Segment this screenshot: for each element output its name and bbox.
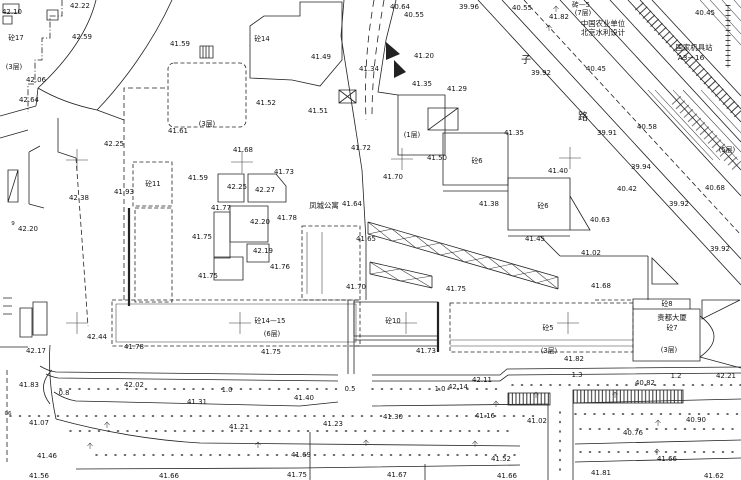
braced-box-marker — [339, 90, 356, 103]
spot-elevation-label: 41.76 — [270, 263, 291, 271]
spot-elevation-label: 41.75 — [446, 285, 466, 293]
survey-cross-mark — [229, 312, 251, 334]
spot-elevation-label: 42.27 — [255, 186, 275, 194]
spot-elevation-label: 41.02 — [581, 249, 601, 257]
building-story-label: 砼5 — [542, 323, 553, 332]
steps-hatched-bar — [573, 390, 683, 403]
building-outline — [8, 170, 18, 202]
spot-elevation-label: 41.30 — [383, 413, 403, 421]
building-story-label: 砼10 — [385, 316, 400, 325]
building-story-label: 砼11 — [145, 179, 160, 188]
building-story-label: 砼6 — [537, 201, 548, 210]
spot-elevation-label: 41.16 — [475, 412, 496, 420]
building-outline — [652, 258, 678, 284]
tree-symbol — [255, 442, 260, 448]
survey-cross-mark — [66, 149, 88, 171]
spot-elevation-label: 42.11 — [472, 376, 492, 384]
spot-elevation-label: 41.75 — [198, 272, 218, 280]
spot-elevation-label: 41.61 — [168, 127, 188, 135]
spot-elevation-label: 39.96 — [459, 3, 480, 11]
spot-elevation-label: 41.31 — [187, 398, 207, 406]
spot-elevation-label: 41.77 — [211, 204, 231, 212]
spot-elevation-label: 39.92 — [710, 245, 730, 253]
spot-elevation-label: 41.67 — [387, 471, 407, 479]
building-inner-line — [307, 232, 322, 294]
slab-buildings-row — [112, 300, 633, 374]
spot-elevation-label: 39.91 — [597, 129, 617, 137]
width-dimension-label: 1.3 — [572, 371, 583, 379]
fence-dashed — [76, 158, 88, 326]
tree-symbol — [553, 6, 558, 12]
spot-elevation-label: 41.65 — [356, 235, 376, 243]
building-outline — [250, 2, 342, 86]
building-story-label: (3层) — [6, 63, 23, 71]
spot-elevation-label: 41.70 — [383, 173, 403, 181]
survey-cross-mark — [391, 148, 413, 170]
spot-elevation-label: 41.73 — [416, 347, 436, 355]
spot-elevation-label: 40.90 — [686, 416, 706, 424]
tick-marks — [3, 298, 12, 314]
lane-line — [310, 432, 425, 480]
spot-elevation-label: 40.42 — [617, 185, 637, 193]
tree-symbol — [655, 420, 660, 426]
spot-elevation-label: 41.52 — [491, 455, 511, 463]
building-outline — [47, 10, 58, 20]
sidewalk-dot-row — [10, 414, 741, 416]
survey-cross-mark — [557, 312, 579, 334]
survey-map: 42.10砼1742.2242.5942.0642.64(3层)41.59(3层… — [0, 0, 741, 480]
spot-elevation-label: 41.75 — [261, 348, 281, 356]
tree-symbol — [104, 422, 109, 428]
spot-elevation-label: 41.82 — [549, 13, 569, 21]
spot-elevation-label: 42.20 — [18, 225, 38, 233]
spot-elevation-label: 42.25 — [227, 183, 247, 191]
building-story-label: 砼8 — [661, 299, 672, 308]
spot-elevation-label: 42.25 — [104, 140, 124, 148]
boundary-line — [700, 357, 741, 368]
spot-elevation-label: 41.56 — [29, 472, 50, 480]
spot-elevation-label: 41.68 — [233, 146, 253, 154]
steps-hatched-bar — [508, 393, 550, 405]
spot-elevation-label: 41.75 — [192, 233, 212, 241]
spot-elevation-label: 41.38 — [479, 200, 499, 208]
boundary-line — [49, 345, 56, 419]
spot-elevation-label: 41.82 — [564, 355, 584, 363]
fengcheng-compound — [124, 88, 360, 306]
fence-band-outline — [370, 262, 432, 288]
building-outline — [508, 178, 590, 236]
building-story-label: (1层) — [404, 131, 421, 139]
spot-elevation-label: 42.21 — [716, 372, 736, 380]
crosses-layer — [66, 147, 581, 334]
place-name-label: 国家机具站 — [676, 43, 714, 52]
road-edge — [58, 118, 76, 158]
building-story-label: 砖—5 — [572, 0, 590, 9]
spot-elevation-label: 41.83 — [19, 381, 39, 389]
spot-elevation-label: 39.94 — [631, 163, 652, 171]
building-story-label: (6层) — [264, 330, 281, 338]
small-annotation-label: 06 — [4, 411, 12, 417]
tree-symbol — [363, 440, 368, 446]
stairs-symbol — [200, 46, 213, 58]
spot-elevation-label: 41.46 — [37, 452, 58, 460]
place-name-label: 北京水利设计 — [581, 28, 626, 37]
spot-elevation-label: 42.02 — [124, 381, 144, 389]
spot-elevation-label: 41.40 — [294, 394, 314, 402]
spot-elevation-label: 41.68 — [591, 282, 611, 290]
building-curved-wall — [700, 316, 714, 357]
road-curb — [76, 458, 741, 469]
tree-symbol — [472, 441, 477, 447]
tree-symbol — [493, 401, 498, 407]
building-story-label: (5层) — [719, 146, 736, 154]
spot-elevation-label: 40.76 — [623, 429, 644, 437]
spot-elevation-label: 42.17 — [26, 347, 46, 355]
width-dimension-label: 0.5 — [345, 385, 356, 393]
spot-elevation-label: 40.58 — [637, 123, 657, 131]
spot-elevation-label: 41.52 — [256, 99, 276, 107]
spot-elevation-label: 40.82 — [635, 379, 655, 387]
spot-elevation-label: 41.66 — [497, 472, 518, 480]
building-outline — [214, 212, 243, 280]
spot-elevation-label: 41.45 — [525, 235, 545, 243]
guidu-block — [595, 299, 741, 368]
spot-elevation-label: 40.63 — [590, 216, 610, 224]
spot-elevation-label: 40.68 — [705, 184, 725, 192]
width-dimension-label: 1.0 — [435, 385, 446, 393]
spot-elevation-label: 41.49 — [311, 53, 331, 61]
small-annotation-label: 9 — [11, 221, 15, 227]
building-story-label: (3层) — [541, 347, 558, 355]
spot-elevation-label: 41.59 — [188, 174, 208, 182]
spot-elevation-label: 41.73 — [274, 168, 294, 176]
braced-fence-bands — [368, 222, 558, 289]
spot-elevation-label: 42.64 — [19, 96, 40, 104]
survey-cross-mark — [559, 147, 581, 169]
place-name-label: 贵都大厦 — [657, 313, 687, 322]
building-story-label: 砼14—15 — [255, 316, 286, 325]
building-inner-line — [450, 340, 633, 346]
spot-elevation-label: 39.92 — [669, 200, 689, 208]
boundary-line — [540, 236, 648, 300]
street-name-char: 路 — [578, 110, 588, 123]
place-name-label: 中国农业单位 — [581, 19, 626, 28]
spot-elevation-label: 41.23 — [323, 420, 343, 428]
labels-layer: 42.10砼1742.2242.5942.0642.64(3层)41.59(3层… — [2, 0, 736, 480]
walkway-edge — [348, 300, 354, 374]
center-road — [339, 0, 406, 300]
spot-elevation-label: 41.50 — [427, 154, 447, 162]
building-outline — [0, 302, 47, 347]
crossing-wedge-marker — [386, 42, 406, 78]
building-story-label: 砼14 — [254, 34, 269, 43]
building-story-label: 砼6 — [471, 156, 482, 165]
spot-elevation-label: 41.20 — [414, 52, 434, 60]
spot-elevation-label: 40.55 — [512, 4, 532, 12]
survey-map-canvas: 42.10砼1742.2242.5942.0642.64(3层)41.59(3层… — [0, 0, 741, 480]
spot-elevation-label: 40.64 — [390, 3, 411, 11]
building-outline-dashed — [168, 63, 246, 127]
tree-symbol — [546, 25, 551, 31]
spot-elevation-label: 41.75 — [287, 471, 307, 479]
spot-elevation-label: 42.22 — [70, 2, 90, 10]
tree-symbol — [87, 443, 92, 449]
width-dimension-label: 1.2 — [671, 372, 682, 380]
building-outline — [702, 300, 740, 319]
spot-elevation-label: 41.40 — [548, 167, 568, 175]
width-dimension-label: 0.8 — [59, 389, 70, 397]
building-outline — [398, 95, 508, 191]
building-story-label: 砼17 — [8, 33, 23, 42]
spot-elevation-label: 41.93 — [114, 188, 134, 196]
street-name-char: 子 — [521, 54, 531, 66]
spot-elevation-label: 41.62 — [704, 472, 724, 480]
spot-elevation-label: 41.21 — [229, 423, 249, 431]
spot-elevation-label: 41.66 — [657, 455, 678, 463]
spot-elevation-label: 41.35 — [412, 80, 432, 88]
spot-elevation-label: 41.78 — [277, 214, 297, 222]
spot-elevation-label: 42.14 — [448, 383, 469, 391]
spot-elevation-label: 41.59 — [170, 40, 190, 48]
road-centerline-dashed — [365, 0, 384, 120]
spot-elevation-label: 40.45 — [695, 9, 715, 17]
spot-elevation-label: 42.20 — [250, 218, 270, 226]
spot-elevation-label: 41.51 — [308, 107, 328, 115]
spot-elevation-label: 41.78 — [124, 343, 144, 351]
survey-cross-mark — [66, 312, 88, 334]
spot-elevation-label: 41.34 — [359, 65, 380, 73]
spot-elevation-label: 41.29 — [447, 85, 467, 93]
spot-elevation-label: 42.10 — [2, 8, 22, 16]
place-name-label: A3—16 — [678, 53, 705, 62]
spot-elevation-label: 42.59 — [72, 33, 92, 41]
west-edge-features — [0, 118, 88, 462]
corner-fence-lines — [700, 0, 741, 45]
spot-elevation-label: 42.06 — [26, 76, 47, 84]
place-name-label: 凤城公寓 — [309, 201, 339, 210]
width-dimension-label: 1.0 — [222, 386, 233, 394]
spot-elevation-label: 41.72 — [351, 144, 371, 152]
fence-band-bracing — [370, 262, 432, 288]
blocks-northwest — [0, 0, 342, 138]
spot-elevation-label: 41.02 — [527, 417, 547, 425]
spot-elevation-label: 41.70 — [346, 283, 366, 291]
spot-elevation-label: 42.38 — [69, 194, 89, 202]
building-story-label: (7层) — [575, 9, 592, 17]
building-annex-braced — [428, 108, 458, 130]
spot-elevation-label: 39.92 — [531, 69, 551, 77]
spot-elevation-label: 41.35 — [504, 129, 524, 137]
spot-elevation-label: 42.19 — [253, 247, 273, 255]
building-story-label: (3层) — [199, 120, 216, 128]
survey-cross-mark — [231, 151, 253, 173]
building-story-label: 砼7 — [666, 323, 677, 332]
spot-elevation-label: 40.45 — [586, 65, 606, 73]
roads-south — [10, 345, 741, 480]
spot-elevation-label: 41.07 — [29, 419, 49, 427]
spot-elevation-label: 41.64 — [342, 200, 363, 208]
spot-elevation-label: 42.44 — [87, 333, 108, 341]
spot-elevation-label: 41.81 — [591, 469, 611, 477]
spot-elevation-label: 40.55 — [404, 11, 424, 19]
building-story-label: (3层) — [661, 346, 678, 354]
spot-elevation-label: 41.69 — [291, 451, 311, 459]
sidewalk-dot-row — [96, 452, 741, 455]
boundary-marks — [29, 146, 44, 208]
spot-elevation-label: 41.66 — [159, 472, 180, 480]
